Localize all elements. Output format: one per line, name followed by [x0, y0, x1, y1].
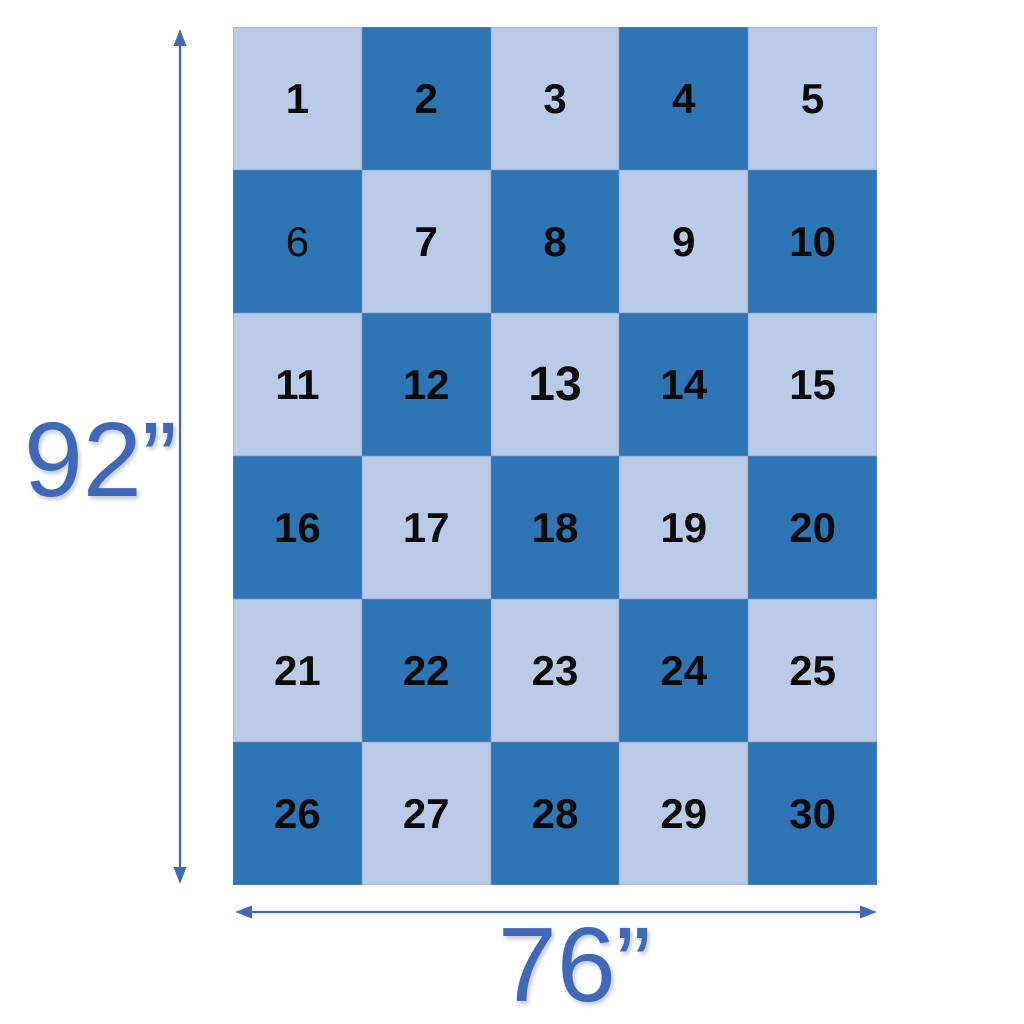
grid-cell-20: 20 — [748, 456, 877, 599]
grid-cell-22: 22 — [362, 599, 491, 742]
diagram-canvas: 92” 123456789101112131415161718192021222… — [0, 0, 1024, 1024]
arrow-down-icon — [174, 867, 187, 884]
grid-cell-9: 9 — [619, 170, 748, 313]
grid-cell-7: 7 — [362, 170, 491, 313]
grid-cell-8: 8 — [491, 170, 620, 313]
grid-cell-25: 25 — [748, 599, 877, 742]
grid-cell-28: 28 — [491, 742, 620, 885]
arrow-left-icon — [235, 906, 252, 919]
grid-cell-1: 1 — [233, 27, 362, 170]
quilt-grid: 1234567891011121314151617181920212223242… — [233, 27, 877, 885]
grid-cell-23: 23 — [491, 599, 620, 742]
grid-cell-10: 10 — [748, 170, 877, 313]
grid-cell-12: 12 — [362, 313, 491, 456]
arrow-right-icon — [860, 906, 877, 919]
grid-cell-26: 26 — [233, 742, 362, 885]
grid-cell-2: 2 — [362, 27, 491, 170]
width-dimension-label: 76” — [487, 912, 662, 1018]
grid-cell-27: 27 — [362, 742, 491, 885]
grid-cell-13: 13 — [491, 313, 620, 456]
grid-cell-16: 16 — [233, 456, 362, 599]
height-dimension-label: 92” — [18, 407, 183, 513]
grid-cell-30: 30 — [748, 742, 877, 885]
grid-cell-6: 6 — [233, 170, 362, 313]
grid-cell-21: 21 — [233, 599, 362, 742]
grid-cell-11: 11 — [233, 313, 362, 456]
grid-cell-4: 4 — [619, 27, 748, 170]
grid-cell-18: 18 — [491, 456, 620, 599]
grid-cell-5: 5 — [748, 27, 877, 170]
grid-cell-14: 14 — [619, 313, 748, 456]
grid-cell-29: 29 — [619, 742, 748, 885]
grid-cell-24: 24 — [619, 599, 748, 742]
grid-cell-17: 17 — [362, 456, 491, 599]
arrow-up-icon — [174, 29, 187, 46]
grid-cell-19: 19 — [619, 456, 748, 599]
grid-cell-3: 3 — [491, 27, 620, 170]
grid-cell-15: 15 — [748, 313, 877, 456]
